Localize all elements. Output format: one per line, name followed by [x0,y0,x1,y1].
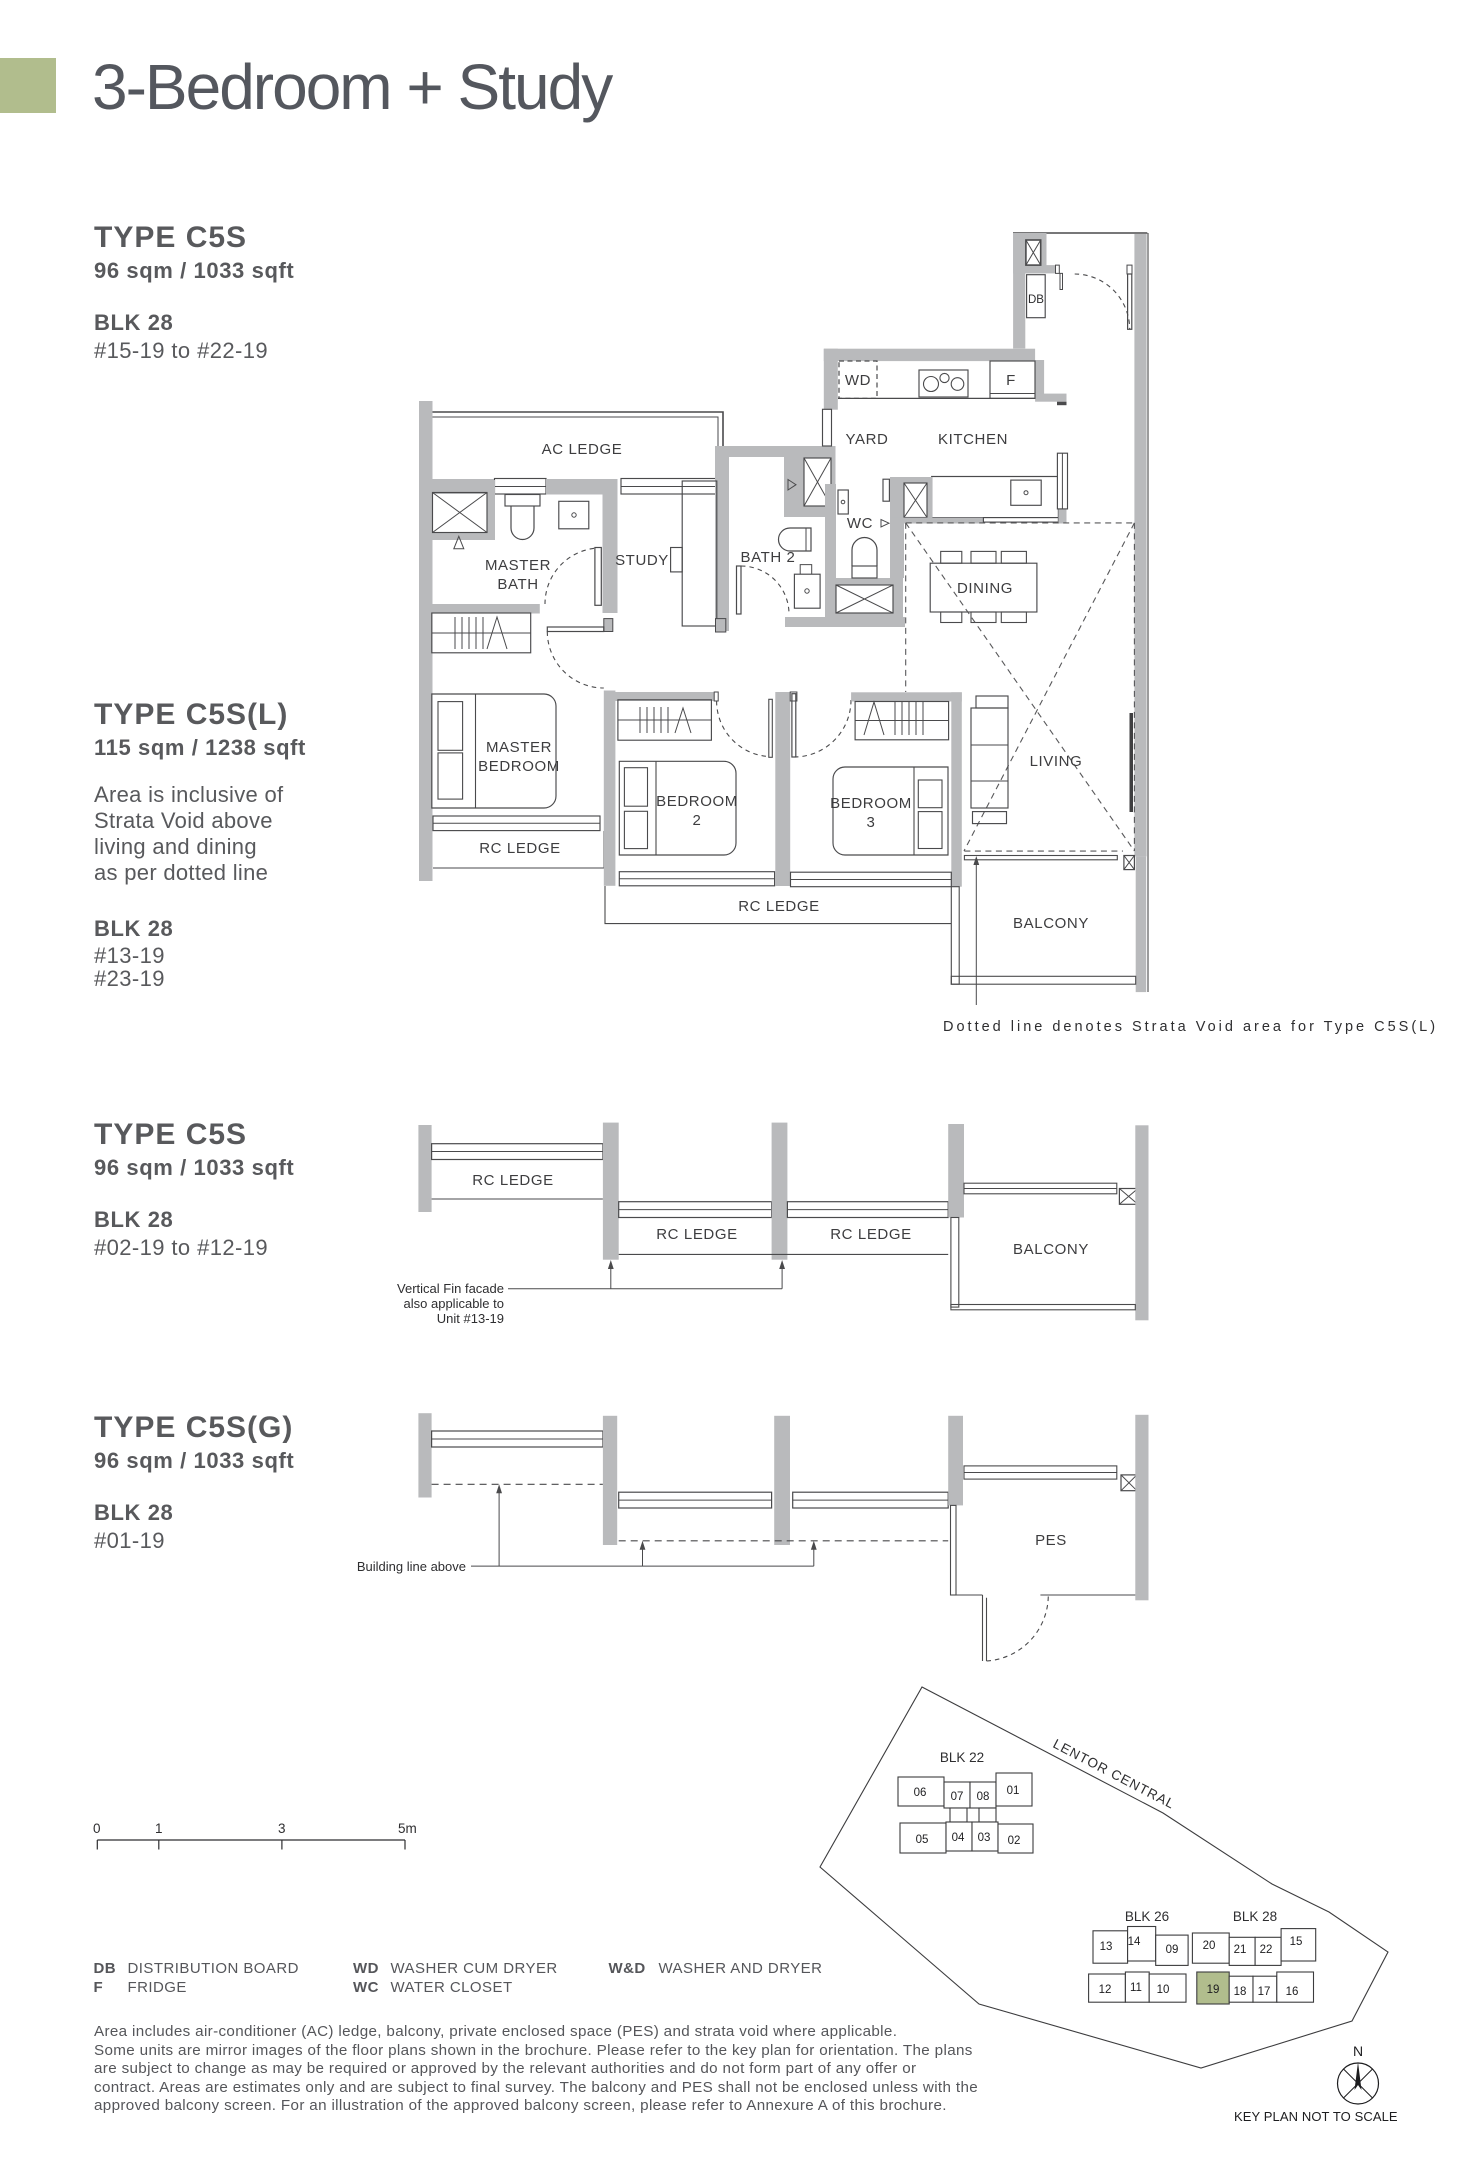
svg-text:11: 11 [1130,1982,1142,1994]
svg-text:RC LEDGE: RC LEDGE [479,840,561,857]
svg-text:05: 05 [916,1834,929,1846]
svg-text:Vertical Fin facade: Vertical Fin facade [397,1281,504,1296]
svg-text:F: F [1006,372,1016,389]
svg-text:07: 07 [951,1791,964,1803]
svg-text:3: 3 [867,814,876,831]
svg-text:RC LEDGE: RC LEDGE [830,1226,912,1243]
svg-text:1: 1 [155,1821,163,1836]
svg-text:5m: 5m [398,1821,417,1836]
svg-text:RC LEDGE: RC LEDGE [656,1226,738,1243]
svg-text:08: 08 [977,1791,990,1803]
svg-text:BLK 28: BLK 28 [1233,1909,1277,1924]
svg-text:06: 06 [914,1787,927,1799]
svg-text:BEDROOM: BEDROOM [478,758,560,775]
svg-text:RC LEDGE: RC LEDGE [472,1172,554,1189]
svg-text:BATH: BATH [497,576,538,593]
svg-text:02: 02 [1008,1835,1021,1847]
svg-text:BEDROOM: BEDROOM [656,793,738,810]
svg-text:BLK 26: BLK 26 [1125,1909,1169,1924]
svg-text:20: 20 [1203,1940,1216,1952]
svg-text:DB: DB [1028,294,1044,306]
svg-text:22: 22 [1260,1944,1273,1956]
svg-text:16: 16 [1286,1986,1299,1998]
svg-text:BALCONY: BALCONY [1013,915,1089,932]
svg-text:STUDY: STUDY [615,552,669,569]
svg-text:Unit #13-19: Unit #13-19 [437,1311,504,1326]
svg-text:14: 14 [1128,1936,1141,1948]
svg-text:BEDROOM: BEDROOM [830,795,912,812]
svg-text:15: 15 [1290,1936,1303,1948]
svg-text:AC LEDGE: AC LEDGE [542,441,623,458]
svg-text:01: 01 [1007,1785,1020,1797]
svg-text:13: 13 [1100,1941,1113,1953]
svg-text:DINING: DINING [957,580,1013,597]
svg-text:04: 04 [952,1832,965,1844]
svg-text:21: 21 [1234,1944,1247,1956]
svg-text:Dotted line denotes Strata Voi: Dotted line denotes Strata Void area for… [943,1019,1438,1035]
svg-text:Building line above: Building line above [357,1559,466,1574]
svg-text:WC: WC [847,515,873,532]
svg-text:RC LEDGE: RC LEDGE [738,898,820,915]
svg-text:BATH 2: BATH 2 [740,549,795,566]
svg-text:19: 19 [1207,1984,1220,1996]
svg-text:10: 10 [1157,1984,1170,1996]
svg-text:LIVING: LIVING [1030,753,1083,770]
svg-text:18: 18 [1234,1986,1247,1998]
svg-text:KITCHEN: KITCHEN [938,431,1008,448]
svg-text:N: N [1353,2043,1363,2059]
svg-text:also applicable to: also applicable to [404,1296,504,1311]
svg-text:12: 12 [1099,1984,1112,1996]
svg-text:WD: WD [845,372,871,389]
svg-text:3: 3 [278,1821,286,1836]
svg-text:0: 0 [93,1821,101,1836]
svg-text:2: 2 [693,812,702,829]
svg-text:09: 09 [1166,1944,1179,1956]
svg-text:YARD: YARD [846,431,889,448]
svg-text:MASTER: MASTER [485,557,551,574]
svg-text:KEY PLAN NOT TO SCALE: KEY PLAN NOT TO SCALE [1234,2109,1398,2124]
svg-text:03: 03 [978,1832,991,1844]
svg-text:MASTER: MASTER [486,739,552,756]
svg-text:PES: PES [1035,1532,1067,1549]
svg-text:LENTOR CENTRAL: LENTOR CENTRAL [1051,1736,1178,1812]
svg-text:17: 17 [1258,1986,1271,1998]
svg-text:BLK 22: BLK 22 [940,1750,984,1765]
svg-text:BALCONY: BALCONY [1013,1241,1089,1258]
